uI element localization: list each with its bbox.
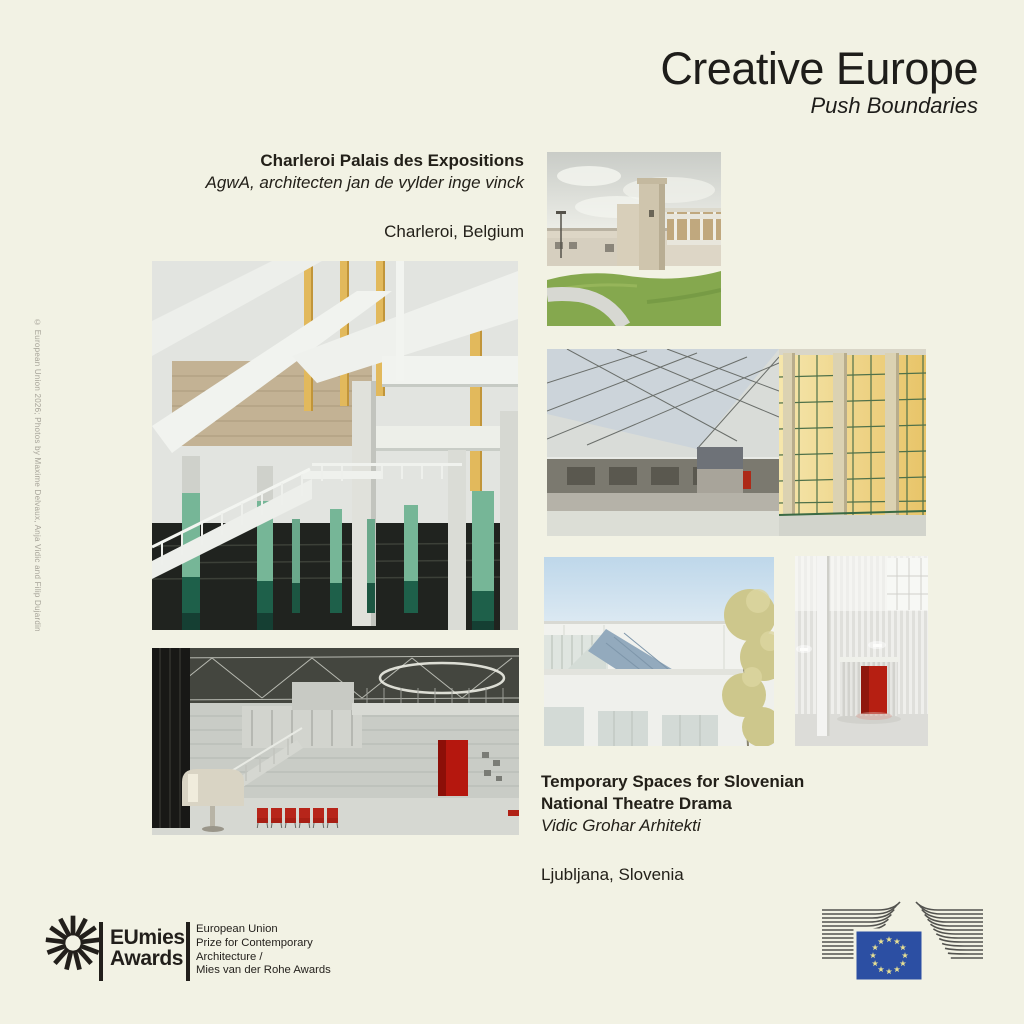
eumies-tagline: European Union Prize for Contemporary Ar…: [196, 923, 331, 978]
project-belgium-caption: Charleroi Palais des Expositions AgwA, a…: [206, 150, 524, 243]
ljubljana-theatre-hall-photo: [152, 648, 519, 835]
project-location: Ljubljana, Slovenia: [541, 864, 804, 886]
project-location: Charleroi, Belgium: [206, 221, 524, 243]
charleroi-exterior-photo: [547, 152, 721, 326]
eumies-starburst-icon: [40, 910, 106, 976]
project-name: Charleroi Palais des Expositions: [206, 150, 524, 172]
poster-canvas: © European Union 2026; Photos by Maxime …: [0, 0, 1024, 1024]
program-subtitle: Push Boundaries: [660, 93, 978, 119]
eumies-wordmark: EUmies Awards: [110, 927, 185, 969]
project-architect: Vidic Grohar Arhitekti: [541, 815, 804, 837]
eumies-word-1: EUmies: [110, 927, 185, 948]
copyright-credit: © European Union 2026; Photos by Maxime …: [33, 318, 42, 658]
header: Creative Europe Push Boundaries: [660, 46, 978, 119]
ec-right-swoosh: [916, 902, 983, 958]
ljubljana-blue-roof-photo: [544, 557, 774, 746]
ljubljana-curtain-room-photo: [795, 556, 928, 746]
eumies-divider-bar: [99, 922, 103, 981]
program-title: Creative Europe: [660, 46, 978, 91]
eumies-divider-bar: [186, 922, 190, 981]
eumies-word-2: Awards: [110, 948, 185, 969]
project-name: Temporary Spaces for Slovenian: [541, 771, 804, 793]
charleroi-interior-columns-photo: [152, 261, 518, 630]
project-slovenia-caption: Temporary Spaces for Slovenian National …: [541, 771, 804, 886]
project-name: National Theatre Drama: [541, 793, 804, 815]
project-architect: AgwA, architecten jan de vylder inge vin…: [206, 172, 524, 194]
european-commission-logo: [820, 900, 985, 990]
charleroi-glass-hall-photo: [547, 349, 926, 536]
